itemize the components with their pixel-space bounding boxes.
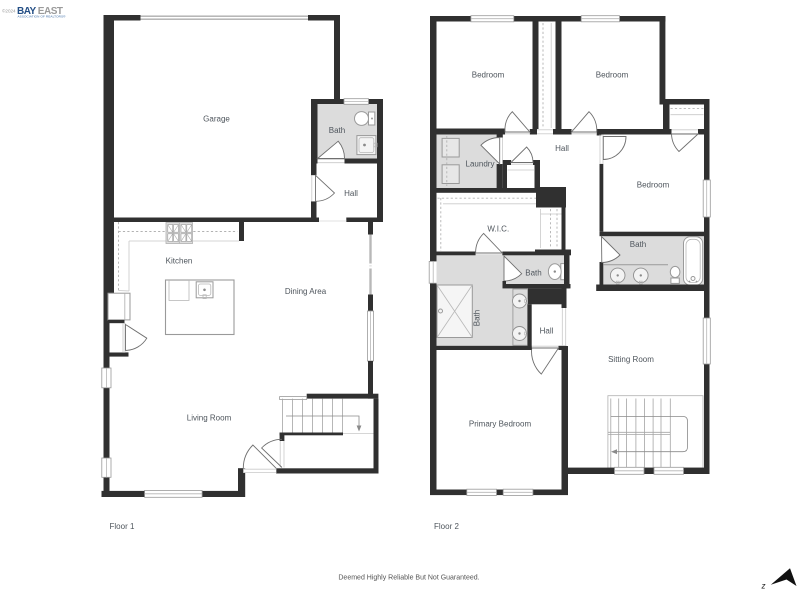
svg-text:Floor 2: Floor 2 — [434, 522, 459, 531]
svg-text:Bath: Bath — [630, 240, 646, 249]
svg-text:Bedroom: Bedroom — [596, 71, 629, 80]
svg-text:Bedroom: Bedroom — [637, 181, 670, 190]
svg-text:Sitting Room: Sitting Room — [608, 355, 654, 364]
svg-text:Bedroom: Bedroom — [472, 71, 505, 80]
svg-text:Hall: Hall — [540, 327, 554, 336]
svg-text:Living Room: Living Room — [187, 414, 232, 423]
svg-text:Bath: Bath — [525, 269, 541, 278]
svg-text:Floor 1: Floor 1 — [110, 522, 135, 531]
svg-text:Primary Bedroom: Primary Bedroom — [469, 420, 532, 429]
svg-text:Garage: Garage — [203, 115, 230, 124]
svg-text:©2024: ©2024 — [2, 8, 16, 14]
svg-text:Bath: Bath — [473, 310, 482, 326]
svg-text:ASSOCIATION OF REALTORS®: ASSOCIATION OF REALTORS® — [18, 14, 67, 18]
svg-text:Laundry: Laundry — [466, 160, 495, 169]
svg-text:Hall: Hall — [555, 144, 569, 153]
svg-text:Dining Area: Dining Area — [285, 287, 327, 296]
svg-text:z: z — [761, 582, 766, 591]
svg-text:Kitchen: Kitchen — [166, 257, 193, 266]
svg-text:Hall: Hall — [344, 189, 358, 198]
svg-text:Deemed Highly Reliable But Not: Deemed Highly Reliable But Not Guarantee… — [338, 575, 479, 582]
svg-text:W.I.C.: W.I.C. — [487, 225, 509, 234]
svg-text:Bath: Bath — [329, 126, 345, 135]
